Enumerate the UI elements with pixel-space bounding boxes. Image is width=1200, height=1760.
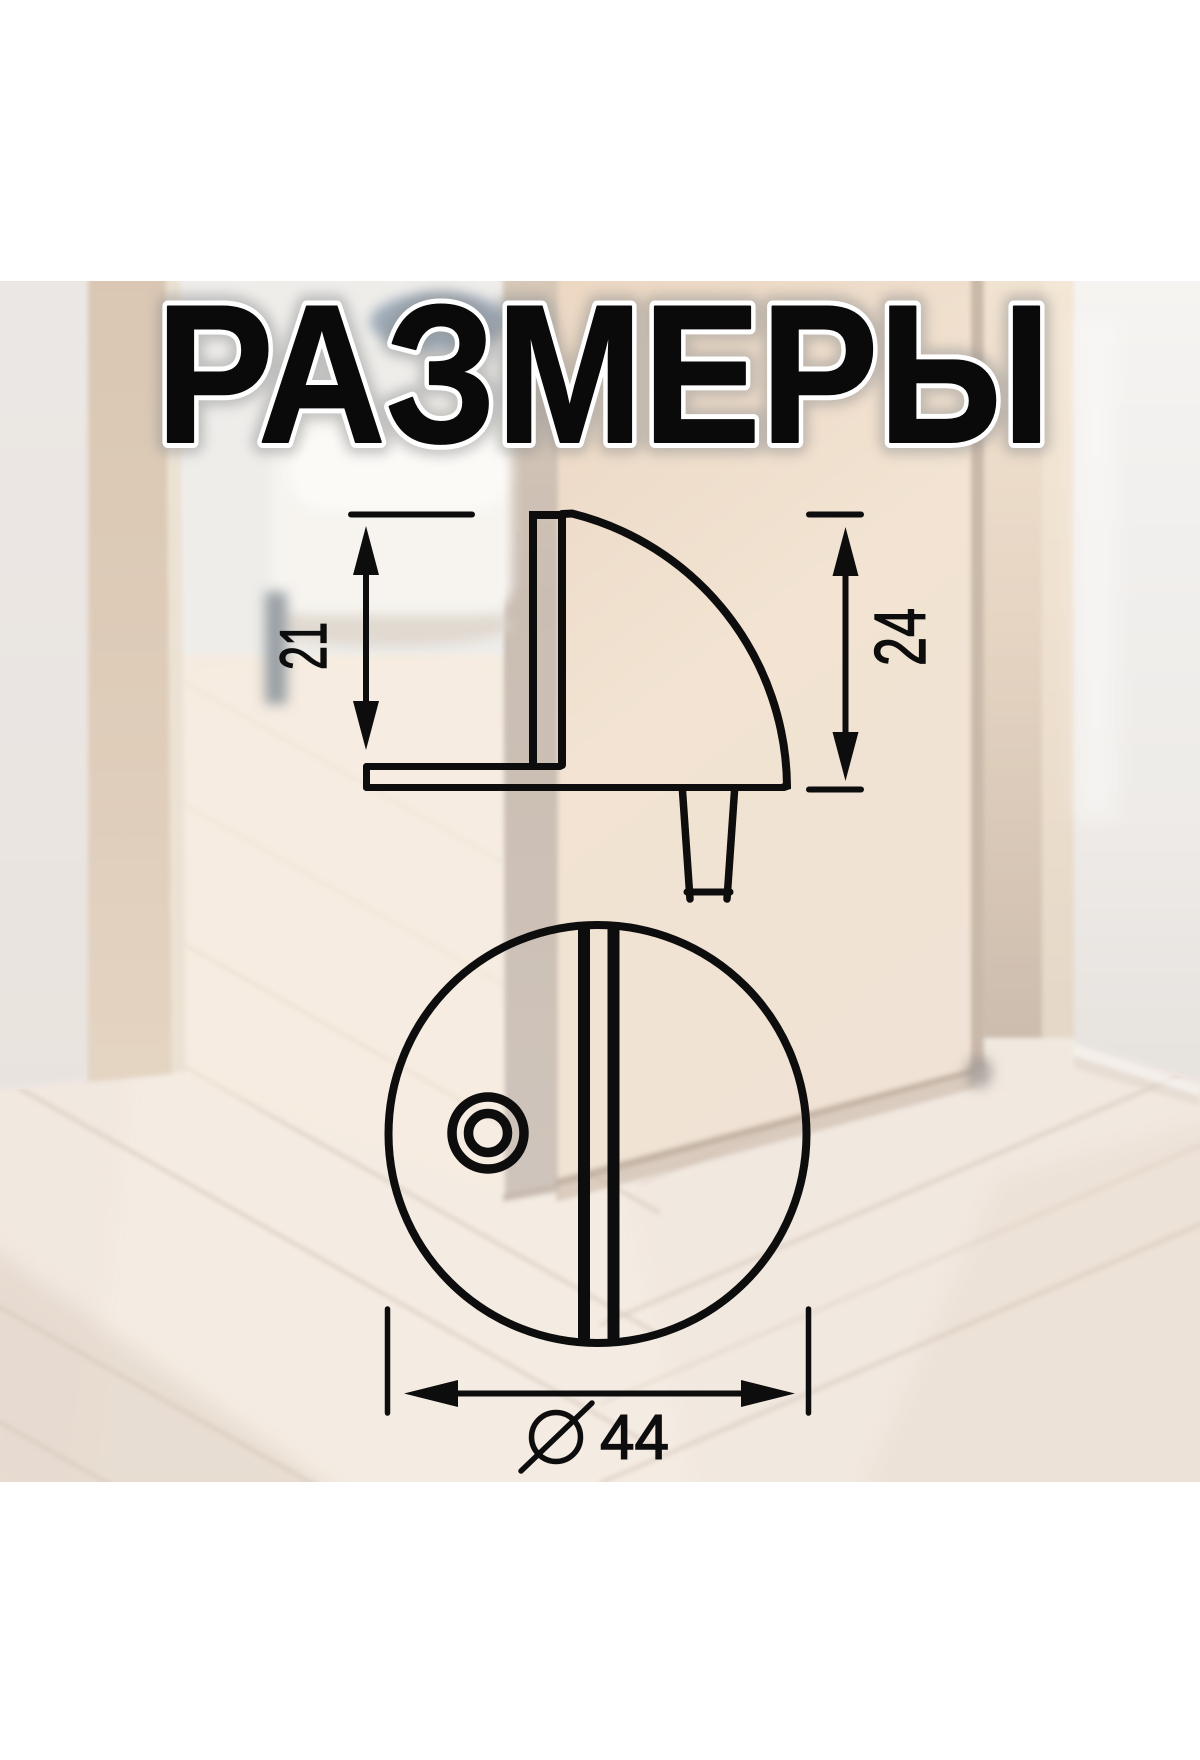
svg-text:24: 24 bbox=[861, 608, 941, 666]
svg-text:21: 21 bbox=[266, 622, 340, 670]
svg-text:44: 44 bbox=[600, 1403, 669, 1473]
svg-text:РАЗМЕРЫ: РАЗМЕРЫ bbox=[156, 264, 1051, 484]
